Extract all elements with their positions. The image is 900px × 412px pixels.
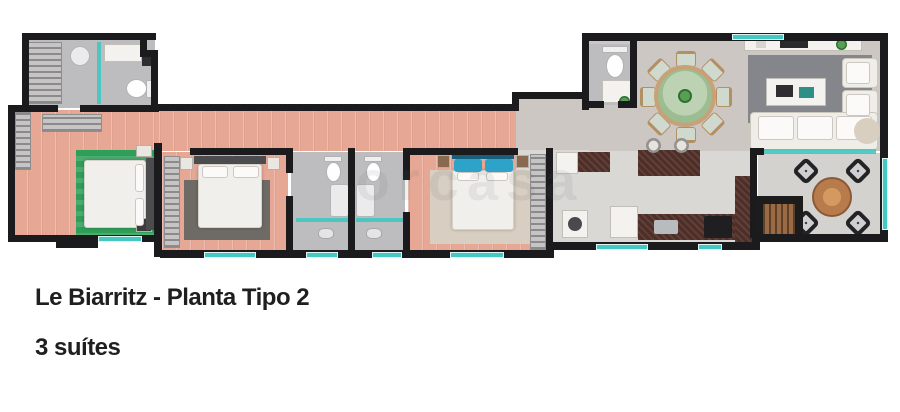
kitchen-island: [638, 150, 700, 176]
wall: [403, 212, 410, 256]
suite2-headboard: [194, 156, 266, 164]
shower-tray: [356, 184, 375, 217]
sofa-cushion: [758, 116, 794, 140]
terrace-table: [812, 177, 852, 217]
shower-tray: [330, 184, 349, 217]
sofa-cushion: [797, 116, 833, 140]
suite2-nightstand: [180, 157, 193, 170]
window: [204, 252, 256, 258]
floor-plan-page: orcasa Le Biarritz - Planta Tipo 2 3 suí…: [0, 0, 900, 412]
bath-sink: [366, 228, 382, 239]
tray: [799, 87, 814, 98]
wall: [8, 105, 15, 242]
laundry-cabinet: [556, 152, 578, 174]
window: [698, 244, 722, 250]
wall: [546, 148, 553, 256]
page-subtitle: 3 suítes: [35, 334, 120, 362]
terrace-door-glass: [762, 149, 876, 154]
entry-floor: [516, 99, 589, 151]
toilet-tank: [602, 46, 628, 53]
suite3-nightstand: [437, 155, 450, 168]
fridge: [610, 206, 638, 238]
wall: [582, 38, 589, 110]
console-frame: [756, 40, 766, 48]
shower-glass: [97, 42, 101, 104]
side-table: [854, 118, 880, 144]
cooktop: [704, 216, 732, 238]
wall: [22, 33, 29, 112]
wall: [408, 148, 518, 155]
kitchen-counter: [578, 152, 610, 172]
coffee-table: [766, 78, 826, 106]
wall: [582, 101, 604, 108]
suite3-pillow: [457, 172, 479, 181]
suite3-pillow-blue: [485, 159, 513, 172]
wall: [512, 92, 589, 99]
toilet-bowl: [126, 79, 147, 98]
corridor-floor: [159, 111, 516, 151]
suite1-bath-closet: [28, 42, 62, 104]
shower-tray: [70, 46, 90, 66]
wall: [750, 148, 764, 155]
washer-door: [568, 217, 582, 231]
grill-grate: [763, 204, 795, 234]
wall: [630, 41, 637, 107]
window: [450, 252, 504, 258]
wall: [752, 234, 883, 242]
wall: [80, 105, 159, 112]
shower-glass: [296, 218, 349, 222]
toilet-bowl: [326, 162, 341, 182]
bar-stool: [674, 138, 689, 153]
suite1-headboard: [146, 158, 154, 230]
suite3-nightstand: [516, 155, 529, 168]
suite2-closet: [164, 156, 180, 248]
suite2-nightstand: [267, 157, 280, 170]
wall: [286, 148, 293, 173]
shower-glass: [356, 218, 405, 222]
armchair-cushion: [846, 94, 870, 116]
window: [306, 252, 338, 258]
tray: [776, 85, 793, 97]
suite1-pillow: [135, 198, 144, 226]
wall: [546, 242, 760, 250]
suite3-pillow-blue: [454, 159, 482, 172]
toilet-bowl: [366, 162, 381, 182]
wall: [13, 105, 58, 112]
wall: [56, 240, 98, 248]
window: [98, 236, 142, 242]
suite1-nightstand: [136, 145, 152, 157]
bath-sink: [318, 228, 334, 239]
suite3-closet: [530, 154, 546, 250]
page-title: Le Biarritz - Planta Tipo 2: [35, 284, 309, 312]
suite1-wardrobe: [42, 114, 102, 132]
floor-plan: orcasa: [0, 0, 900, 272]
dining-centerpiece: [678, 89, 692, 103]
window: [596, 244, 648, 250]
wall: [618, 101, 637, 108]
window: [882, 158, 888, 230]
wall: [158, 104, 518, 111]
suite2-pillow: [202, 166, 228, 178]
window: [372, 252, 402, 258]
bar-stool: [646, 138, 661, 153]
window: [732, 34, 784, 40]
wall: [348, 148, 355, 252]
vanity-counter: [104, 44, 142, 62]
suite1-shelf: [15, 112, 31, 170]
suite3-pillow: [486, 172, 508, 181]
kitchen-sink: [654, 220, 678, 234]
wall: [750, 148, 757, 238]
wall: [190, 148, 290, 155]
suite1-pillow: [135, 164, 144, 192]
wall: [286, 196, 293, 256]
armchair-cushion: [846, 62, 870, 84]
wall: [22, 33, 156, 40]
suite2-pillow: [233, 166, 259, 178]
wall: [154, 143, 162, 257]
toilet-bowl: [606, 54, 624, 78]
dining-chair: [716, 87, 732, 107]
wall: [151, 55, 158, 112]
